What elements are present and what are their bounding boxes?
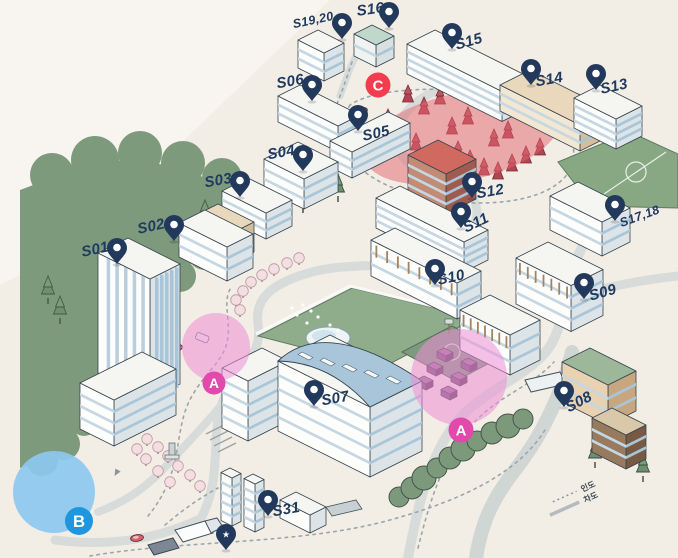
zone-badge-letter: C <box>373 77 384 94</box>
pin-dot <box>264 496 272 504</box>
garden-dot <box>301 303 304 306</box>
campus-map-canvas: 인도 차도 AABC★ S01S02S03S04S05S06S07S08S09S… <box>0 0 678 558</box>
zone-badge-letter: A <box>456 422 467 439</box>
zone-badge-letter: A <box>209 376 219 391</box>
monument <box>169 443 175 456</box>
forest-canopy <box>30 153 74 197</box>
zone-a1 <box>182 313 250 381</box>
bush <box>513 409 533 429</box>
pin-dot <box>468 178 476 186</box>
pin-dot <box>308 81 316 89</box>
pin-dot <box>354 111 362 119</box>
zone-badge-a[interactable]: A <box>449 418 474 443</box>
pin-star-icon: ★ <box>222 530 230 540</box>
zone-badge-letter: B <box>73 512 85 531</box>
garden-dot <box>309 309 312 312</box>
forest-canopy <box>118 131 162 175</box>
pin-dot <box>299 151 307 159</box>
forest-canopy <box>71 136 119 184</box>
garden-dot <box>316 315 319 318</box>
garden-dot <box>305 321 308 324</box>
zone-a2 <box>411 329 507 425</box>
zone-badge-c[interactable]: C <box>366 73 391 98</box>
pin-dot <box>236 177 244 185</box>
basketball-hoop <box>445 319 453 324</box>
pin-dot <box>385 8 393 16</box>
pin-dot <box>457 208 465 216</box>
campus-map: 인도 차도 AABC★ S01S02S03S04S05S06S07S08S09S… <box>0 0 678 558</box>
pin-dot <box>527 65 535 73</box>
pin-dot <box>611 201 619 209</box>
building <box>221 468 241 526</box>
zone-badge-b[interactable]: B <box>65 507 93 535</box>
pin-dot <box>580 279 588 287</box>
garden-dot <box>336 328 339 331</box>
forest-canopy <box>161 141 205 185</box>
garden-dot <box>328 323 331 326</box>
pin-dot <box>448 29 456 37</box>
monument-base <box>165 455 179 459</box>
garden-dot <box>295 313 298 316</box>
zone-badge-a[interactable]: A <box>203 372 226 395</box>
pin-dot <box>310 386 318 394</box>
pin-dot <box>560 387 568 395</box>
pin-dot <box>338 19 346 27</box>
pin-dot <box>170 221 178 229</box>
garden-dot <box>290 306 293 309</box>
pin-dot <box>113 244 121 252</box>
pin-dot <box>592 70 600 78</box>
